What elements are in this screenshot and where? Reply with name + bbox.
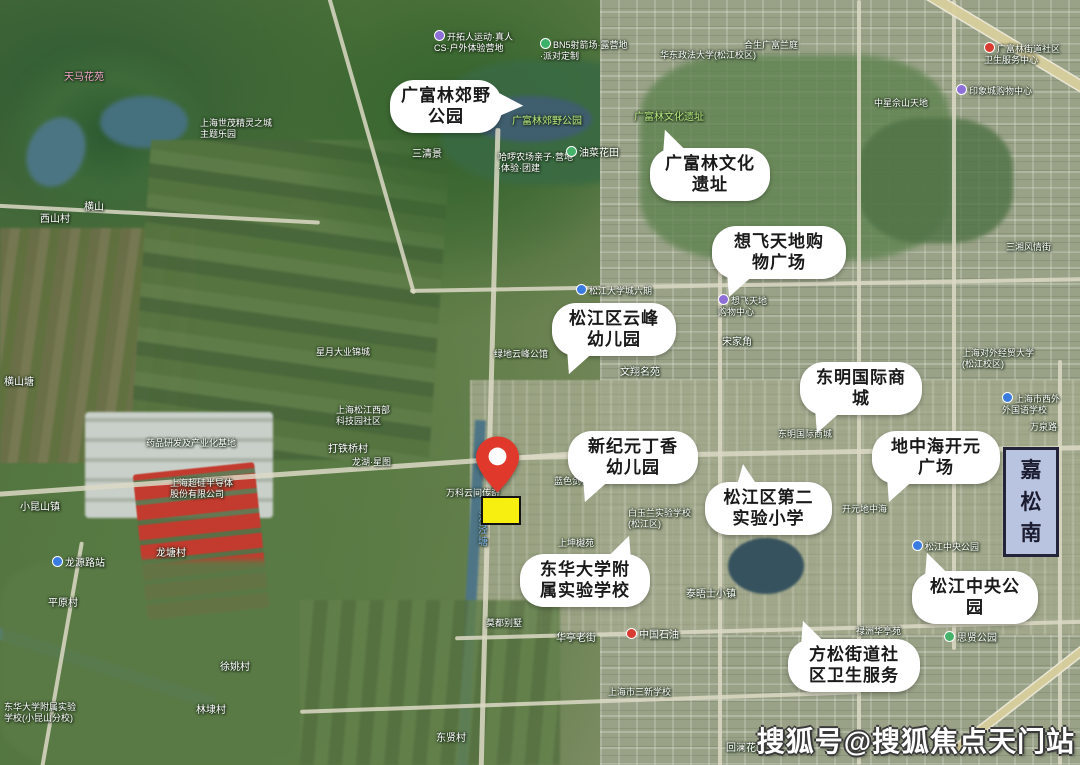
poi-dot-icon <box>540 38 551 49</box>
poi-dot-icon <box>1002 392 1013 403</box>
poi-dot-icon <box>576 284 587 295</box>
callout-text: 东明国际商 <box>806 368 916 389</box>
map-poi-label: 莫都别墅 <box>486 618 522 629</box>
map-poi-label: 油菜花田 <box>566 146 619 161</box>
map-poi-label: 龙湖·星图 <box>352 457 391 468</box>
map-callout: 方松街道社区卫生服务 <box>788 639 920 692</box>
poi-label-text: 中星佘山天地 <box>874 98 928 108</box>
callout-text: 区卫生服务 <box>794 666 914 687</box>
poi-label-text: 龙塘村 <box>156 548 186 559</box>
map-poi-label: 合生广富兰庭 <box>744 40 798 51</box>
poi-label-text: 华东政法大学(松江校区) <box>660 50 756 60</box>
road-plate-char: 松 <box>1021 492 1042 513</box>
map-poi-label: 西山村 <box>40 214 70 227</box>
map-poi-label: 文翔名苑 <box>620 367 660 380</box>
map-poi-label: 上海松江西部 科技园社区 <box>336 405 390 428</box>
map-poi-label: 横山塘 <box>4 377 34 390</box>
map-poi-label: 华亭老街 <box>556 633 596 646</box>
callout-text: 松江中央公 <box>918 577 1032 598</box>
map-callout: 东明国际商城 <box>800 362 922 415</box>
callout-text: 公园 <box>396 107 496 128</box>
map-poi-label: 三湘风情街 <box>1006 242 1051 253</box>
map-poi-label: 横山 <box>84 202 104 215</box>
map-poi-label: 林埭村 <box>196 705 226 718</box>
map-poi-label: 徐姚村 <box>220 662 250 675</box>
callout-text: 地中海开元 <box>878 437 994 458</box>
map-poi-label: 中星佘山天地 <box>874 98 928 109</box>
location-pin-icon <box>476 436 519 493</box>
callout-tail <box>725 275 751 299</box>
poi-label-text: 开元地中海 <box>842 504 887 514</box>
map-callout: 想飞天地购物广场 <box>712 226 846 279</box>
poi-label-text: 印象城购物中心 <box>969 86 1032 96</box>
map-poi-label: 哈啰农场亲子·营地 ·体验·团建 <box>498 152 573 175</box>
poi-dot-icon <box>626 628 637 639</box>
map-poi-label: 白玉兰实验学校 (松江区) <box>628 508 691 531</box>
map-poi-label: 龙源路站 <box>52 556 105 571</box>
poi-label-text: 东贤村 <box>436 733 466 744</box>
poi-label-text: 广富林郊野公园 <box>512 116 582 127</box>
map-poi-label: 禄洲华亭苑 <box>856 626 901 637</box>
map-poi-label: 华东政法大学(松江校区) <box>660 50 756 61</box>
map-poi-label: 上海市三新学校 <box>608 687 671 698</box>
poi-dot-icon <box>984 42 995 53</box>
poi-dot-icon <box>434 30 445 41</box>
callout-tail <box>661 128 685 152</box>
callout-tail <box>565 352 591 376</box>
poi-label-text: 上坤樾苑 <box>558 538 594 548</box>
poi-label-text: 小昆山镇 <box>20 502 60 513</box>
map-poi-label: 思贤公园 <box>944 631 997 646</box>
map-callout: 广富林郊野公园 <box>390 80 502 133</box>
poi-label-text: 林埭村 <box>196 705 226 716</box>
poi-label-text: 文翔名苑 <box>620 367 660 378</box>
poi-label-text: 天马花苑 <box>64 72 104 83</box>
map-poi-label: 广富林郊野公园 <box>512 116 582 129</box>
poi-label-text: 白玉兰实验学校 (松江区) <box>628 508 691 529</box>
map-poi-label: 龙塘村 <box>156 548 186 561</box>
map-poi-label: 平原村 <box>48 598 78 611</box>
poi-label-text: 松江中央公园 <box>925 542 979 552</box>
map-poi-label: 宋家角 <box>722 337 752 350</box>
poi-label-text: BN5射箭场·露营地 ·派对定制 <box>540 40 628 61</box>
map-callout: 东华大学附属实验学校 <box>520 554 650 607</box>
road-plate-char: 南 <box>1021 523 1042 544</box>
callout-tail <box>609 534 633 558</box>
map-poi-label: 广富林街道社区 卫生服务中心 <box>984 42 1060 67</box>
map-poi-label: 上坤樾苑 <box>558 538 594 549</box>
callout-text: 城 <box>806 389 916 410</box>
poi-label-text: 横山 <box>84 202 104 213</box>
poi-label-text: 思贤公园 <box>957 633 997 644</box>
callout-text: 广富林郊野 <box>396 86 496 107</box>
poi-label-text: 松江大学城六期 <box>589 286 652 296</box>
map-poi-label: 开元地中海 <box>842 504 887 515</box>
terrain-green <box>0 560 335 765</box>
map-poi-label: 万泉路 <box>1030 422 1057 433</box>
callout-text: 幼儿园 <box>558 330 670 351</box>
map-callout: 松江中央公园 <box>912 571 1038 624</box>
poi-dot-icon <box>944 631 955 642</box>
callout-text: 属实验学校 <box>526 581 644 602</box>
map-poi-label: 松江大学城六期 <box>576 284 652 297</box>
callout-text: 实验小学 <box>711 509 826 530</box>
poi-label-text: 平原村 <box>48 598 78 609</box>
poi-label-text: 万泉路 <box>1030 422 1057 432</box>
poi-label-text: 开拓人运动·真人 CS·户外体验营地 <box>434 32 513 53</box>
poi-label-text: 东华大学附属实验 学校(小昆山分校) <box>4 702 76 723</box>
poi-label-text: 星月大业锦城 <box>316 347 370 357</box>
callout-text: 物广场 <box>718 253 840 274</box>
callout-text: 新纪元丁香 <box>574 437 692 458</box>
map-callout: 地中海开元广场 <box>872 431 1000 484</box>
map-poi-label: 东贤村 <box>436 733 466 746</box>
callout-tail <box>737 464 757 485</box>
map-poi-label: 星月大业锦城 <box>316 347 370 358</box>
poi-label-text: 打铁桥村 <box>328 444 368 455</box>
poi-label-text: 广富林街道社区 卫生服务中心 <box>984 44 1060 65</box>
poi-label-text: 龙源路站 <box>65 558 105 569</box>
map-poi-label: 三清景 <box>412 149 442 162</box>
terrain-pond <box>728 538 804 594</box>
map-poi-label: 上海市西外 外国语学校 <box>1002 392 1060 417</box>
callout-text: 广富林文化 <box>656 154 764 175</box>
callout-text: 想飞天地购 <box>718 232 840 253</box>
map-poi-label: 小昆山镇 <box>20 502 60 515</box>
poi-label-text: 宋家角 <box>722 337 752 348</box>
poi-label-text: 泰晤士小镇 <box>686 589 736 600</box>
poi-label-text: 莫都别墅 <box>486 618 522 628</box>
callout-tail <box>885 480 911 504</box>
poi-label-text: 油菜花田 <box>579 148 619 159</box>
callout-text: 园 <box>918 598 1032 619</box>
poi-label-text: 广富林文化遗址 <box>634 112 704 123</box>
poi-label-text: 上海松江西部 科技园社区 <box>336 405 390 426</box>
poi-label-text: 中国石油 <box>639 630 679 641</box>
map-poi-label: 上海超硅半导体 股份有限公司 <box>170 478 233 501</box>
map-poi-label: 绿地云峰公馆 <box>494 349 548 360</box>
map-callout: 新纪元丁香幼儿园 <box>568 431 698 484</box>
callout-tail <box>923 551 947 575</box>
callout-text: 广场 <box>878 458 994 479</box>
poi-dot-icon <box>956 84 967 95</box>
map-poi-label: 东华大学附属实验 学校(小昆山分校) <box>4 702 76 725</box>
poi-label-text: 龙湖·星图 <box>352 457 391 467</box>
map-poi-label: 泰晤士小镇 <box>686 589 736 602</box>
map-poi-label: 天马花苑 <box>64 72 104 85</box>
poi-label-text: 禄洲华亭苑 <box>856 626 901 636</box>
poi-label-text: 上海超硅半导体 股份有限公司 <box>170 478 233 499</box>
site-highlight-rectangle <box>481 496 521 525</box>
poi-dot-icon <box>566 146 577 157</box>
callout-tail <box>581 480 607 504</box>
poi-dot-icon <box>912 540 923 551</box>
road-plate-char: 嘉 <box>1021 460 1042 481</box>
map-callout: 松江区云峰幼儿园 <box>552 303 676 356</box>
map-poi-label: 印象城购物中心 <box>956 84 1032 97</box>
map-poi-label: 打铁桥村 <box>328 444 368 457</box>
poi-label-text: 上海市三新学校 <box>608 687 671 697</box>
callout-text: 东华大学附 <box>526 560 644 581</box>
callout-text: 松江区第二 <box>711 488 826 509</box>
map-poi-label: 松江中央公园 <box>912 540 979 553</box>
poi-label-text: 西山村 <box>40 214 70 225</box>
map-callout: 松江区第二实验小学 <box>705 482 832 535</box>
map-poi-label: 广富林文化遗址 <box>634 112 704 125</box>
watermark-text: 搜狐号@搜狐焦点天门站 <box>757 720 1075 760</box>
road-line <box>1058 360 1062 765</box>
poi-label-text: 哈啰农场亲子·营地 ·体验·团建 <box>498 152 573 173</box>
road-name-plate: 嘉松南 <box>1003 447 1059 557</box>
map-poi-label: BN5射箭场·露营地 ·派对定制 <box>540 38 628 63</box>
poi-dot-icon <box>52 556 63 567</box>
map-callout: 广富林文化遗址 <box>650 148 770 201</box>
satellite-map-image: 天马花苑上海世茂精灵之城 主题乐园横山西山村横山塘小昆山镇龙源路站平原村东华大学… <box>0 0 1080 765</box>
map-poi-label: 药品研发及产业化基地 <box>146 438 236 449</box>
poi-label-text: 上海对外经贸大学 (松江校区) <box>962 348 1034 369</box>
map-poi-label: 上海对外经贸大学 (松江校区) <box>962 348 1034 371</box>
callout-tail <box>799 619 823 643</box>
poi-label-text: 药品研发及产业化基地 <box>146 438 236 448</box>
callout-text: 方松街道社 <box>794 645 914 666</box>
map-poi-label: 中国石油 <box>626 628 679 643</box>
map-poi-label: 上海世茂精灵之城 主题乐园 <box>200 118 272 141</box>
poi-label-text: 绿地云峰公馆 <box>494 349 548 359</box>
callout-text: 松江区云峰 <box>558 309 670 330</box>
poi-label-text: 横山塘 <box>4 377 34 388</box>
map-poi-label: 开拓人运动·真人 CS·户外体验营地 <box>434 30 513 55</box>
callout-text: 遗址 <box>656 175 764 196</box>
poi-label-text: 华亭老街 <box>556 633 596 644</box>
poi-label-text: 三湘风情街 <box>1006 242 1051 252</box>
callout-tail <box>496 93 524 120</box>
poi-label-text: 合生广富兰庭 <box>744 40 798 50</box>
poi-label-text: 徐姚村 <box>220 662 250 673</box>
poi-label-text: 上海世茂精灵之城 主题乐园 <box>200 118 272 139</box>
callout-text: 幼儿园 <box>574 458 692 479</box>
callout-tail <box>813 411 839 435</box>
poi-label-text: 三清景 <box>412 149 442 160</box>
terrain-forest <box>858 118 1013 243</box>
